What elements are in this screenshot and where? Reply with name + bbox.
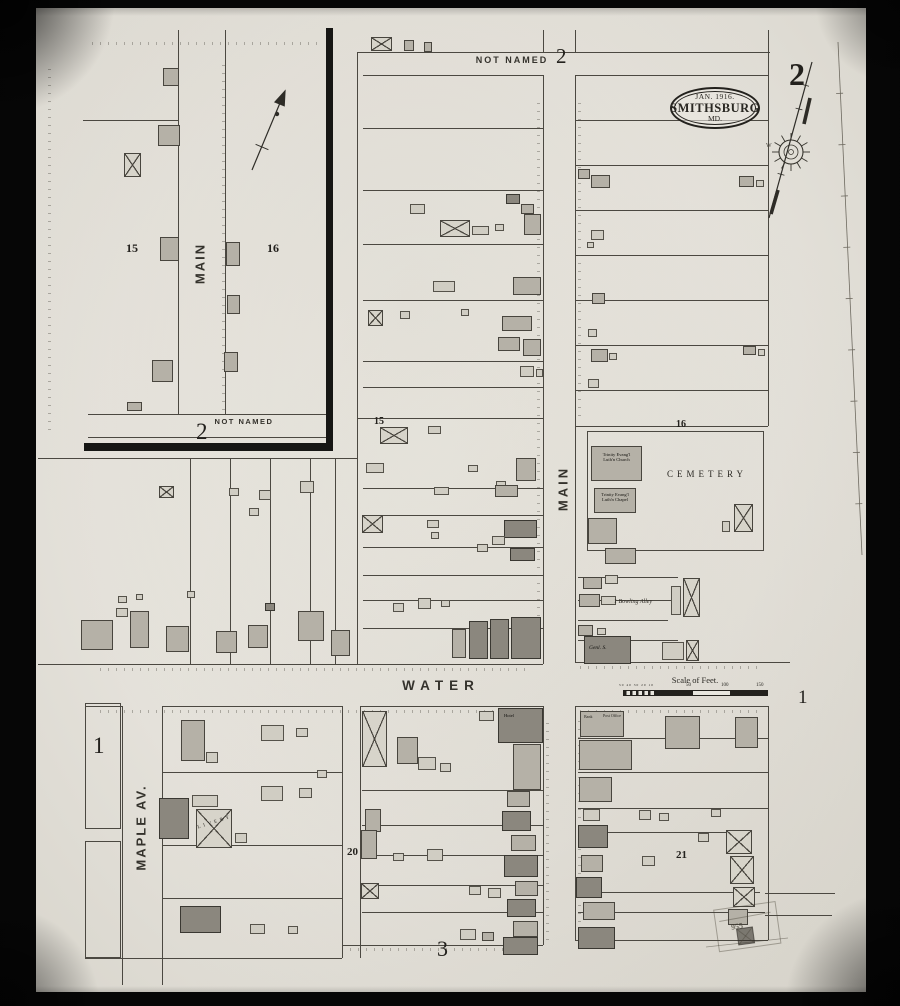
inset-block-16: 16 [267,241,279,256]
church-label-line2: Luth'n Church [592,457,641,462]
post-office-label: Post Office [603,714,622,718]
scale-tick-150: 150 [756,683,764,688]
scale-label: Scale of Feet. [662,675,728,685]
title-state: MD. [708,115,722,123]
stamp-number: 955 [730,921,743,932]
street-not-named-top: NOT NAMED [462,55,562,65]
street-main-inset: MAIN [193,232,208,296]
scale-bar-seg3 [730,691,767,695]
scale-tick-100: 100 [721,683,729,688]
block-1: 1 [93,733,105,759]
title-city: SMITHSBURG [670,102,760,115]
street-not-named-inset: NOT NAMED [206,417,282,426]
scale-tick-50: 50 [686,683,691,688]
chapel-label: Trinity Evang'l Luth'n Chapel [595,492,635,503]
hotel-label: Hotel [504,713,514,718]
labels-layer: 2 2 2 1 15 16 15 16 1 20 21 3 NOT NAMED … [0,0,900,1006]
livery-label: LIVERY [197,815,233,831]
scale-bar-subdivided [624,691,656,695]
bank-label: Bank [584,714,592,719]
church-label: Trinity Evang'l Luth'n Church [592,452,641,463]
adjacent-sheet-number-water: 1 [798,687,808,709]
inset-block-15: 15 [126,241,138,256]
scale-bar-seg2 [693,691,730,695]
block-15: 15 [374,416,384,427]
scale-bar-seg1 [656,691,693,695]
chapel-label-line2: Luth'n Chapel [595,497,635,502]
block-20: 20 [347,846,358,858]
block-21: 21 [676,849,687,861]
street-main: MAIN [556,459,571,519]
map-title-oval: JAN. 1916. SMITHSBURG MD. [670,87,760,129]
street-maple-av: MAPLE AV. [134,773,149,883]
title-date: JAN. 1916. [695,93,734,101]
block-3: 3 [437,936,448,962]
street-water: WATER [398,678,484,693]
sanborn-map-sheet: 2 2 2 1 15 16 15 16 1 20 21 3 NOT NAMED … [0,0,900,1006]
bowling-alley-label: 1 Bowling Alley [614,599,652,605]
scale-bar [623,690,768,696]
cemetery-label: CEMETERY [652,469,762,479]
block-16: 16 [676,419,686,430]
sheet-number: 2 [789,56,805,93]
general-store-label: Genl. S. [589,645,607,651]
scale-subdivisions: 50 40 30 20 10 [619,683,654,687]
